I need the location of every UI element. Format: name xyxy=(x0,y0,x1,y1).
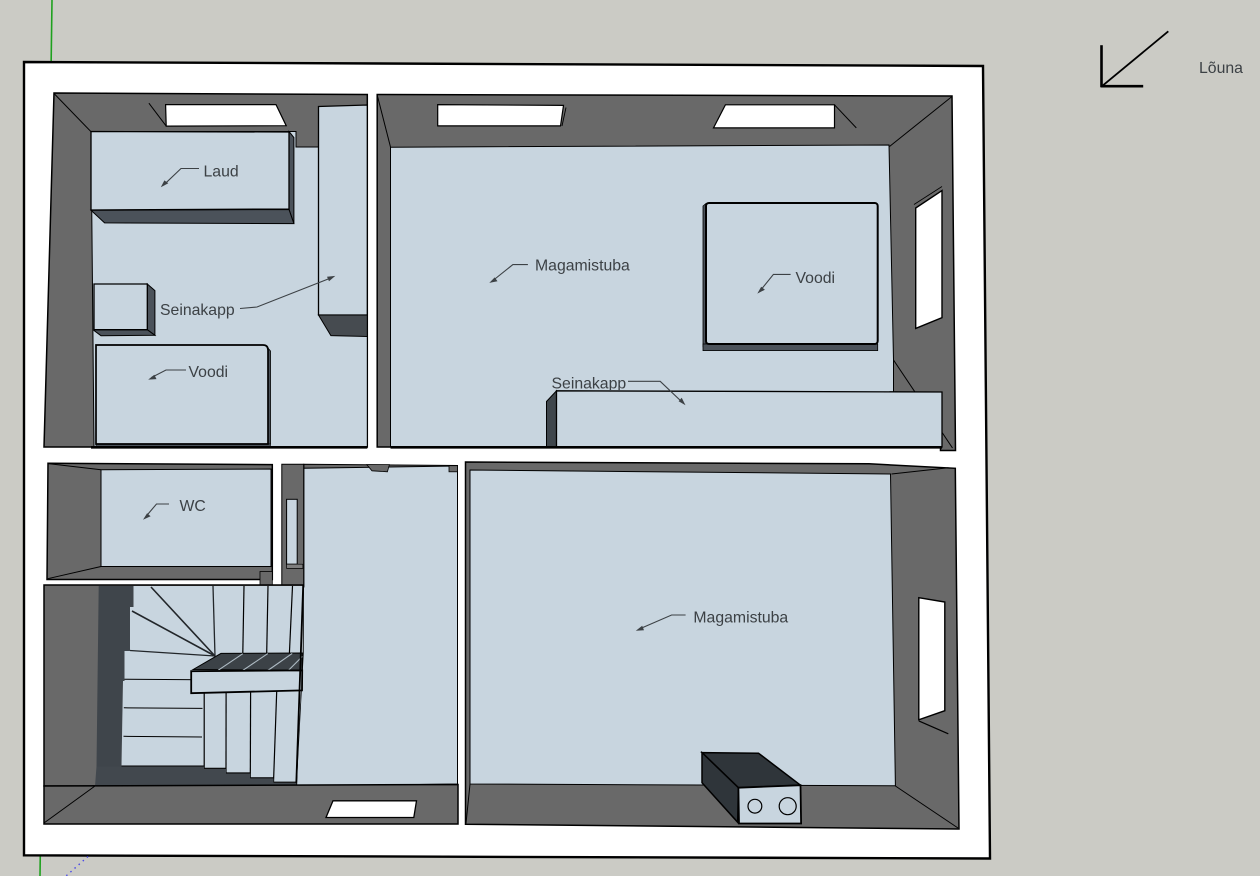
svg-text:Voodi: Voodi xyxy=(189,364,229,381)
svg-text:Magamistuba: Magamistuba xyxy=(693,609,788,626)
svg-text:Seinakapp: Seinakapp xyxy=(552,376,627,393)
svg-text:Voodi: Voodi xyxy=(796,270,836,287)
svg-text:Seinakapp: Seinakapp xyxy=(160,302,235,319)
svg-text:Laud: Laud xyxy=(204,164,239,181)
svg-text:WC: WC xyxy=(180,498,206,515)
svg-text:Lõuna: Lõuna xyxy=(1199,60,1243,77)
svg-text:Magamistuba: Magamistuba xyxy=(535,258,630,275)
